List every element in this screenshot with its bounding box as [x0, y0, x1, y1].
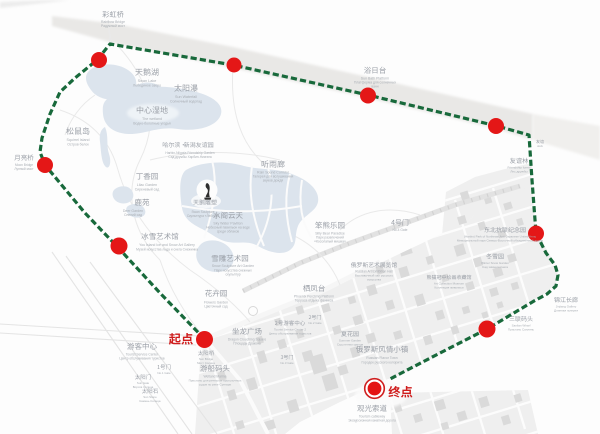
svg-text:Солнечный водопад: Солнечный водопад — [170, 100, 202, 104]
svg-text:Центр обслуживания туристов: Центр обслуживания туристов — [119, 357, 165, 361]
svg-text:Радужный мост: Радужный мост — [101, 24, 125, 28]
svg-text:Цветочный сад: Цветочный сад — [204, 305, 227, 309]
svg-text:Lilac Garden: Lilac Garden — [137, 183, 157, 187]
svg-text:No.3 Gate: No.3 Gate — [280, 361, 294, 365]
svg-text:Длинная галерея: Длинная галерея — [554, 309, 578, 313]
svg-text:среди облаков: среди облаков — [217, 230, 240, 234]
svg-text:Сиреневый сад: Сиреневый сад — [135, 188, 160, 192]
svg-text:Центр обслуживания туристов: Центр обслуживания туристов — [269, 332, 312, 336]
svg-text:звуков дождя: звуков дождя — [263, 179, 284, 183]
svg-text:The wetland: The wetland — [142, 117, 162, 121]
svg-text:скульптур: скульптур — [225, 273, 240, 277]
svg-text:Музей искусства льда и снега С: Музей искусства льда и снега Снежинка — [136, 248, 198, 252]
svg-text:No.4 Gate: No.4 Gate — [392, 228, 407, 232]
svg-text:Сад дружбы Харбин-Ниигата: Сад дружбы Харбин-Ниигата — [168, 155, 211, 159]
svg-text:Водно-болотные угодья: Водно-болотные угодья — [133, 122, 171, 126]
svg-text:искусства: искусства — [367, 278, 381, 282]
svg-text:Скульптура «Лебедь»: Скульптура «Лебедь» — [187, 214, 220, 218]
svg-text:Площадь Дракона: Площадь Дракона — [233, 342, 260, 346]
svg-text:Лунный мост: Лунный мост — [14, 167, 34, 171]
svg-text:Sun Waterfall: Sun Waterfall — [175, 95, 197, 99]
svg-text:«Косолапый мишка»: «Косолапый мишка» — [314, 240, 346, 244]
svg-text:Терраса отдыха феникса: Терраса отдыха феникса — [295, 299, 334, 303]
svg-text:Лес дружбы: Лес дружбы — [510, 170, 528, 174]
svg-text:Камень Солнца: Камень Солнца — [140, 399, 161, 403]
svg-text:No.2 Gate: No.2 Gate — [308, 321, 322, 325]
svg-text:судов по реке Сунгари: судов по реке Сунгари — [199, 383, 232, 387]
svg-text:Snow Sculpture Art Garden: Snow Sculpture Art Garden — [212, 264, 254, 268]
svg-text:Пристань Санлянь: Пристань Санлянь — [508, 328, 535, 332]
svg-text:Остров белок: Остров белок — [67, 143, 89, 147]
svg-text:Городок русского колорита: Городок русского колорита — [361, 361, 402, 365]
svg-text:You Island Ice and Snow Art Ga: You Island Ice and Snow Art Gallery — [139, 243, 195, 247]
svg-text:Russian Flavor Town: Russian Flavor Town — [366, 356, 398, 360]
svg-text:Лебединое озеро: Лебединое озеро — [133, 84, 161, 88]
svg-text:ванн: ванн — [371, 85, 378, 89]
svg-text:Мемориальный парк Северо-Восто: Мемориальный парк Северо-Восточной объед… — [457, 239, 544, 243]
svg-text:Squirrel Island: Squirrel Island — [67, 138, 90, 142]
svg-text:Коллекция живописи: Коллекция живописи — [434, 286, 463, 290]
svg-text:Сад зимнего снега: Сад зимнего снега — [482, 265, 508, 269]
svg-text:Экскурсионная канатная дорога: Экскурсионная канатная дорога — [348, 419, 396, 423]
svg-text:Swan Lake: Swan Lake — [138, 79, 157, 83]
svg-text:dock: dock — [537, 144, 544, 148]
svg-text:No.1 Gate: No.1 Gate — [157, 371, 171, 375]
svg-text:Мост Солнца: Мост Солнца — [197, 361, 215, 365]
svg-text:Сад летних цветов: Сад летних цветов — [337, 343, 364, 347]
svg-text:Ворота Солнца: Ворота Солнца — [133, 385, 154, 389]
svg-text:Олений сад: Олений сад — [124, 213, 142, 217]
